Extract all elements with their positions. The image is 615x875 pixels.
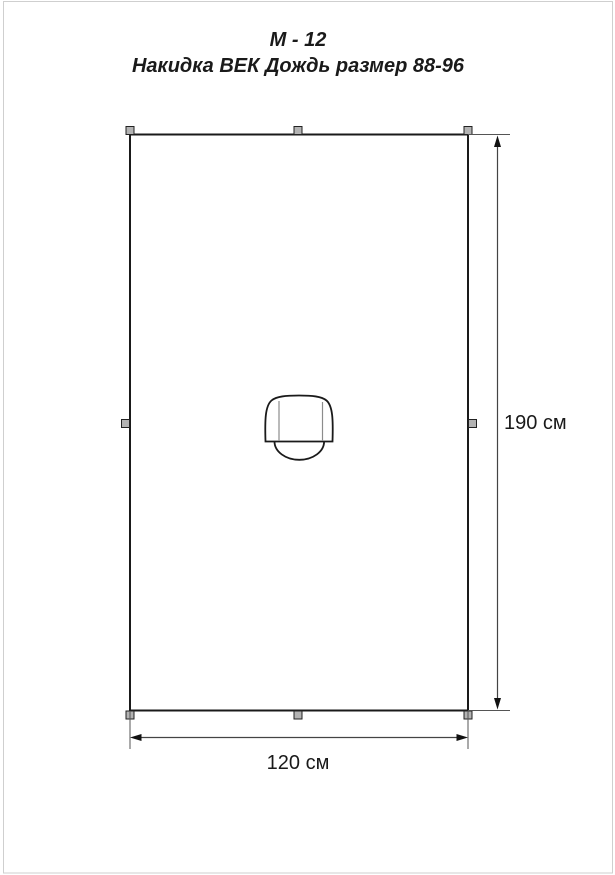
snap-tab-bottom-middle [294,711,302,719]
height-dimension-label: 190 см [504,412,567,434]
arrow-left-icon [130,734,142,741]
snap-tab-left-middle [122,420,130,428]
width-dimension-label: 120 см [267,752,330,774]
drawing-model-code: М - 12 [270,29,327,51]
snap-tab-right-middle [469,420,477,428]
pattern-drawing-page: М - 12 Накидка ВЕК Дождь размер 88-96 [0,0,615,875]
pattern-diagram: М - 12 Накидка ВЕК Дождь размер 88-96 [0,0,615,875]
drawing-product-title: Накидка ВЕК Дождь размер 88-96 [132,55,465,77]
snap-tab-top-left [126,127,134,135]
height-dimension: 190 см [468,135,567,711]
snap-tab-top-right [464,127,472,135]
arrow-down-icon [494,698,501,710]
snap-tab-top-middle [294,127,302,135]
width-dimension: 120 см [130,711,468,774]
cover-outline-rectangle [130,135,468,711]
arrow-right-icon [457,734,469,741]
arrow-up-icon [494,136,501,148]
